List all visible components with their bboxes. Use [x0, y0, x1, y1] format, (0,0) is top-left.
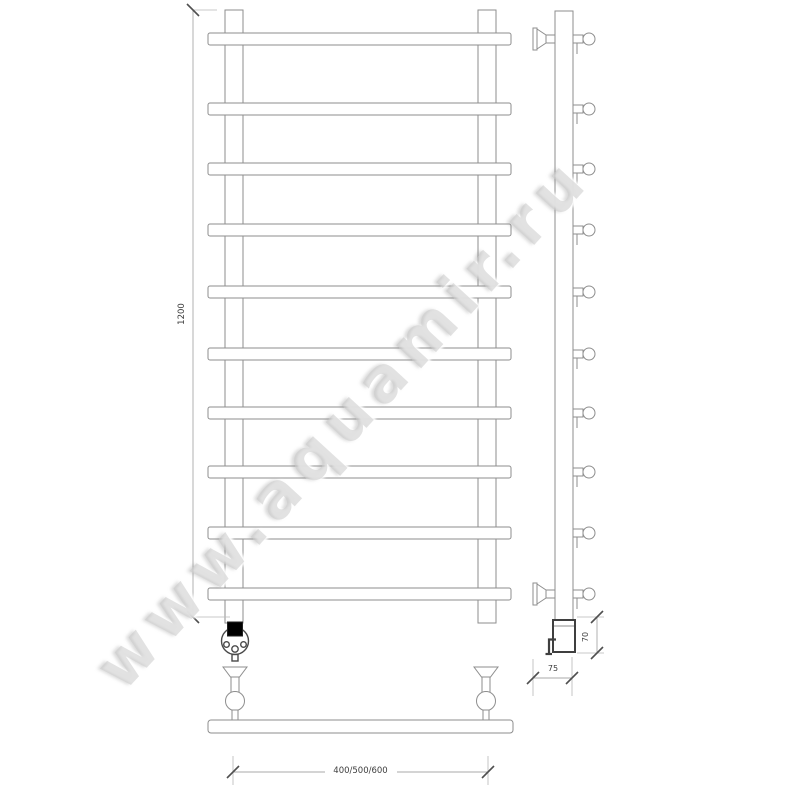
side-rung-end [573, 348, 595, 369]
rung [208, 286, 511, 298]
rung [208, 103, 511, 115]
rung [208, 348, 511, 360]
heater-height-label: 70 [581, 632, 590, 642]
side-rung-end [573, 588, 595, 609]
side-rung-end [573, 286, 595, 307]
mount-depth-label: 75 [548, 664, 558, 673]
side-rung-end [573, 163, 595, 184]
heating-element-side [546, 620, 576, 654]
technical-drawing-canvas: 1200 [0, 0, 800, 800]
bottom-view [208, 667, 513, 733]
side-rung-end [573, 466, 595, 487]
front-view [208, 10, 511, 661]
rung [208, 163, 511, 175]
width-dimension-label: 400/500/600 [333, 766, 387, 776]
side-rung-end [573, 527, 595, 548]
rung [208, 407, 511, 419]
side-rung-end [573, 103, 595, 124]
side-view [533, 11, 595, 654]
heating-element-front [222, 622, 249, 661]
height-dimension-label: 1200 [177, 303, 187, 325]
rung [208, 466, 511, 478]
bottom-rail [208, 720, 513, 733]
element-knob [241, 642, 247, 648]
wall-bracket-bottom [533, 583, 555, 605]
side-rung-end [573, 407, 595, 428]
mounting-bracket-left [223, 667, 247, 721]
width-dimension: 400/500/600 [227, 756, 494, 785]
side-rung-end [573, 33, 595, 54]
element-knob [224, 642, 230, 648]
mounting-bracket-right [474, 667, 498, 721]
rung [208, 224, 511, 236]
towel-rail-drawing: 1200 [0, 0, 800, 800]
rung [208, 33, 511, 45]
wall-bracket-top [533, 28, 555, 50]
depth-dimension: 75 [527, 657, 578, 696]
element-knob [232, 646, 238, 652]
side-post [555, 11, 573, 620]
rung [208, 527, 511, 539]
element-stub [232, 655, 238, 662]
element-display [228, 622, 243, 636]
rung [208, 588, 511, 600]
side-rung-end [573, 224, 595, 245]
heater-height-dimension: 70 [577, 611, 604, 659]
